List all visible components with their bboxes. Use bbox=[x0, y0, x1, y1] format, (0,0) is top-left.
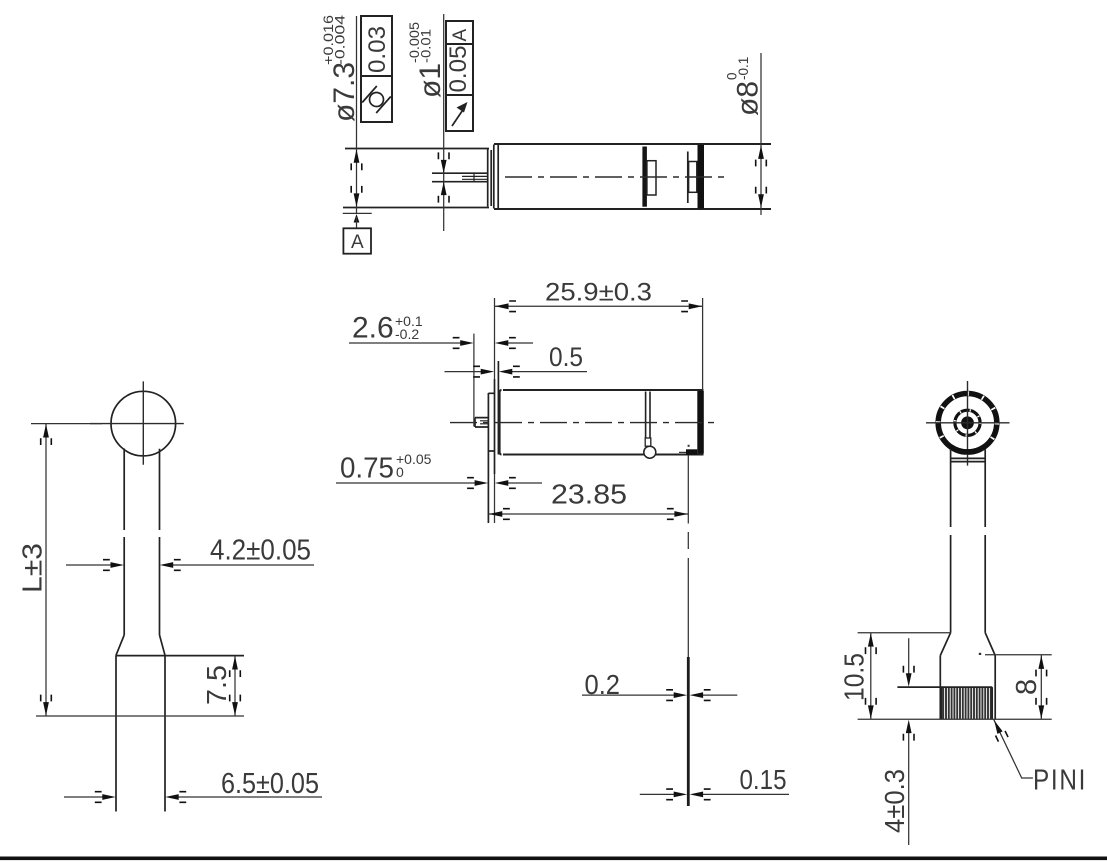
svg-text:-0.2: -0.2 bbox=[395, 326, 419, 342]
svg-text:-0.01: -0.01 bbox=[419, 29, 434, 63]
svg-text:0: 0 bbox=[396, 464, 404, 480]
svg-text:7.5: 7.5 bbox=[201, 665, 232, 705]
svg-text:A: A bbox=[351, 232, 364, 253]
svg-text:23.85: 23.85 bbox=[551, 479, 627, 510]
svg-text:4.2±0.05: 4.2±0.05 bbox=[210, 535, 311, 567]
svg-text:10.5: 10.5 bbox=[839, 653, 870, 701]
svg-text:0.15: 0.15 bbox=[740, 764, 787, 795]
svg-text:PINI: PINI bbox=[1033, 765, 1087, 797]
svg-text:0.2: 0.2 bbox=[585, 669, 621, 700]
svg-text:8: 8 bbox=[1011, 679, 1043, 695]
svg-text:2.6: 2.6 bbox=[352, 312, 394, 345]
svg-text:25.9±0.3: 25.9±0.3 bbox=[545, 279, 652, 307]
svg-text:4±0.3: 4±0.3 bbox=[879, 769, 910, 833]
svg-text:L±3: L±3 bbox=[17, 543, 48, 593]
svg-text:6.5±0.05: 6.5±0.05 bbox=[221, 768, 319, 800]
svg-text:-0.1: -0.1 bbox=[736, 57, 751, 80]
svg-text:ø8: ø8 bbox=[732, 81, 765, 116]
svg-text:-0.004: -0.004 bbox=[333, 14, 348, 65]
svg-text:A: A bbox=[450, 29, 471, 42]
svg-text:ø1: ø1 bbox=[414, 63, 447, 98]
svg-text:0.75: 0.75 bbox=[340, 453, 394, 485]
svg-text:ø7.3: ø7.3 bbox=[328, 62, 361, 122]
svg-text:0.5: 0.5 bbox=[549, 342, 583, 372]
svg-text:0.05: 0.05 bbox=[445, 46, 472, 93]
svg-text:0.03: 0.03 bbox=[364, 26, 391, 73]
